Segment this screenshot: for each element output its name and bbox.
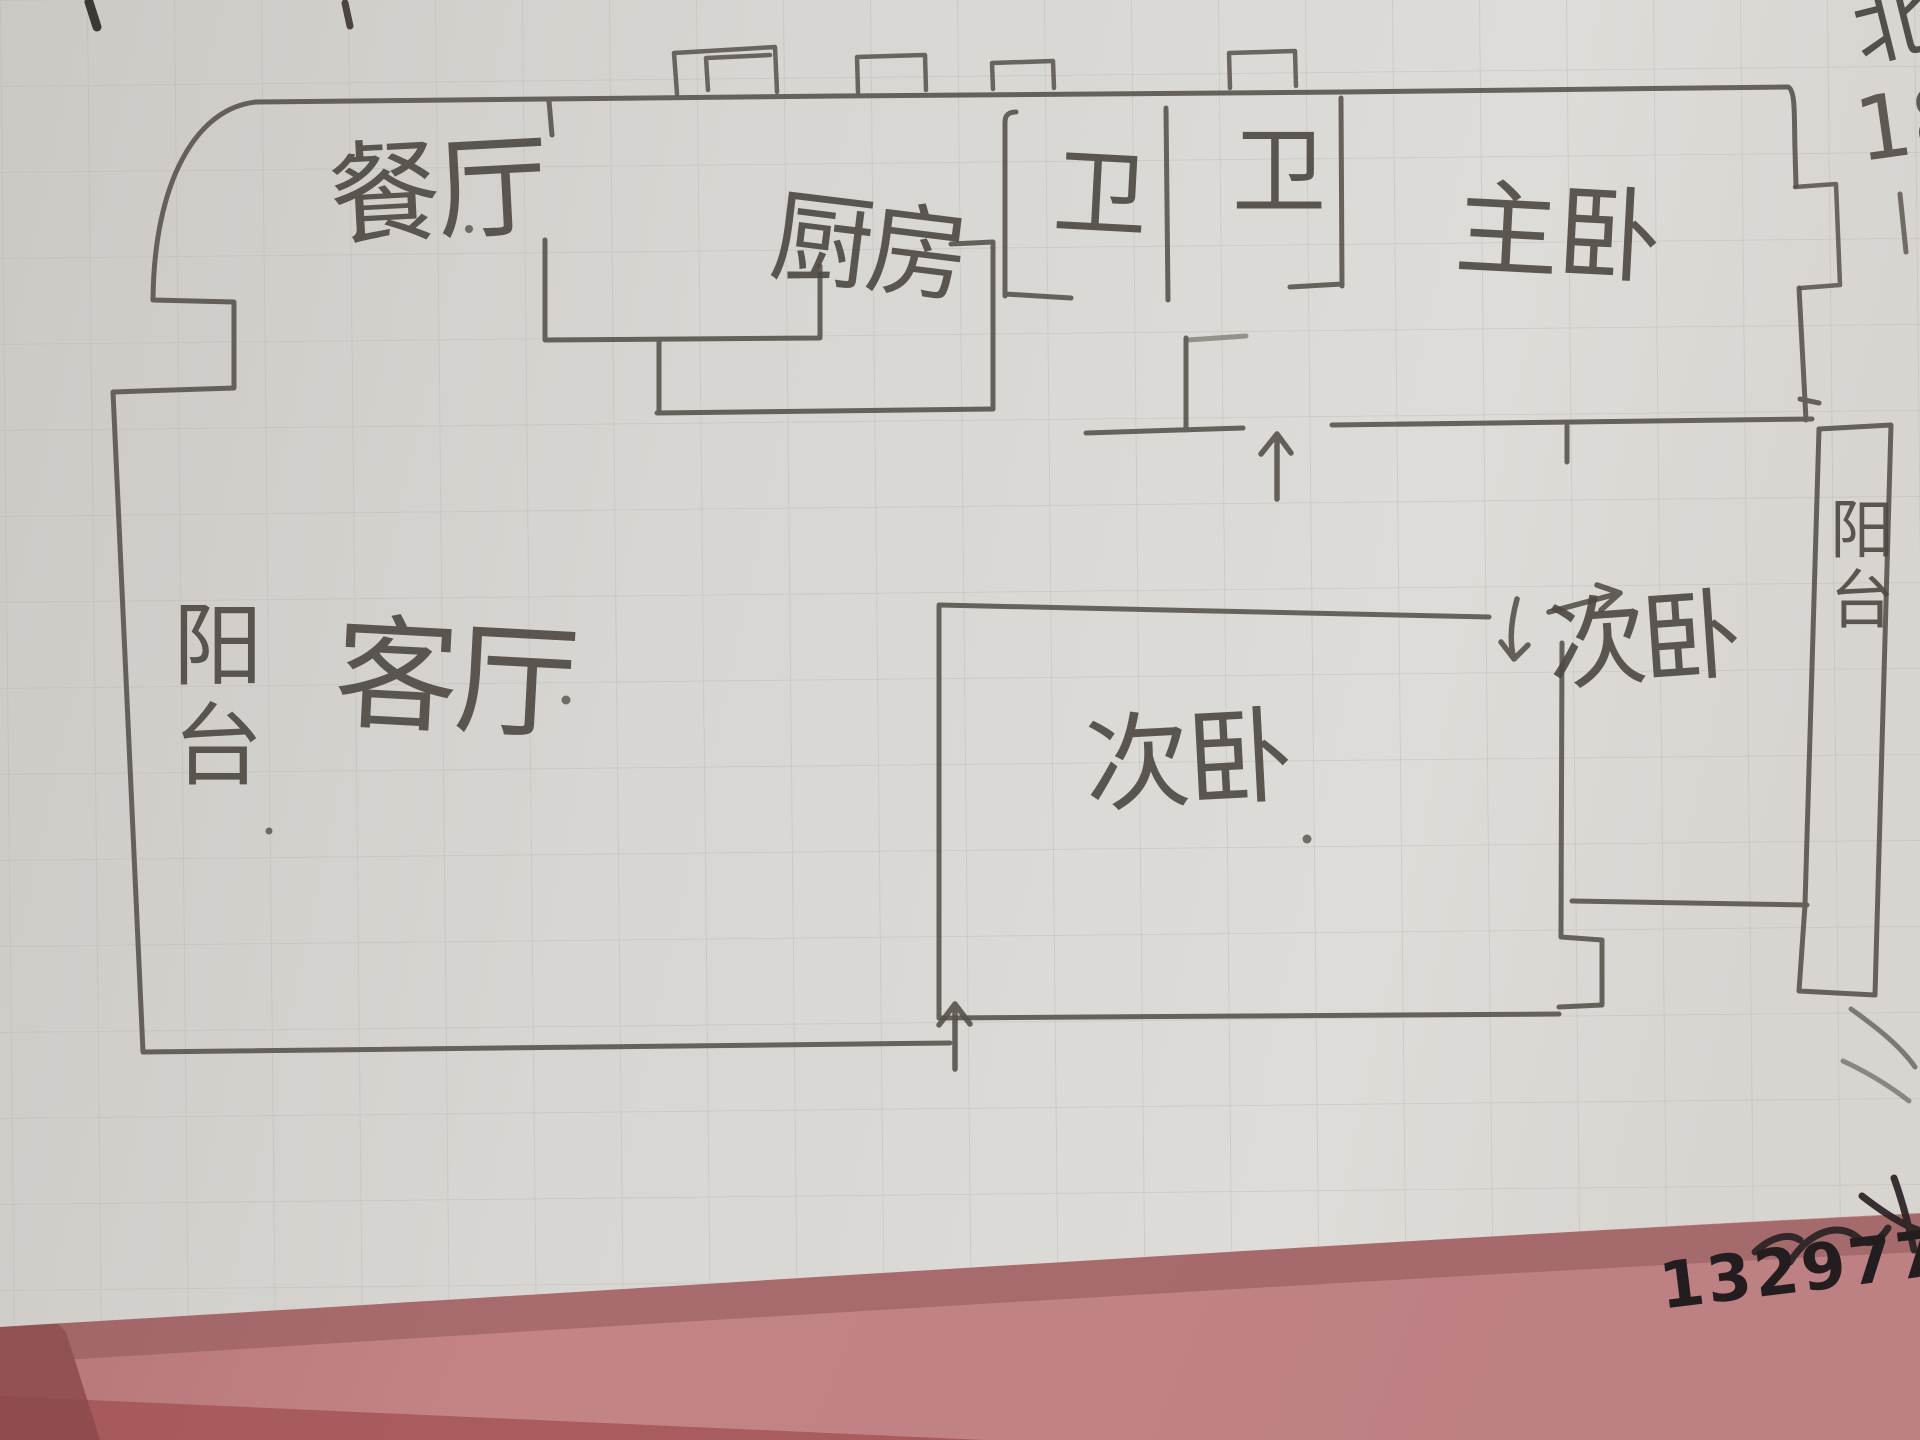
unit-number: 18 xyxy=(1850,72,1920,175)
room-label-kitchen: 厨房 xyxy=(766,186,969,311)
room-label-living: 客厅 xyxy=(332,612,578,748)
room-label-balcony-right: 阳台 xyxy=(1824,496,1888,636)
room-label-bath-2: 卫 xyxy=(1232,126,1326,220)
room-label-bedroom-center: 次卧 xyxy=(1082,703,1291,820)
room-label-bath-1: 卫 xyxy=(1051,146,1150,245)
room-label-dining: 餐厅 xyxy=(326,131,548,254)
room-label-balcony-left: 阳台 xyxy=(164,598,254,798)
room-label-master-bedroom: 主卧 xyxy=(1453,176,1662,291)
floorplan-photo: 餐厅 厨房 卫 卫 主卧 客厅 阳台 次卧 次卧 阳台 北 18 1329777… xyxy=(0,0,1920,1440)
room-label-bedroom-right: 次卧 xyxy=(1544,585,1739,698)
